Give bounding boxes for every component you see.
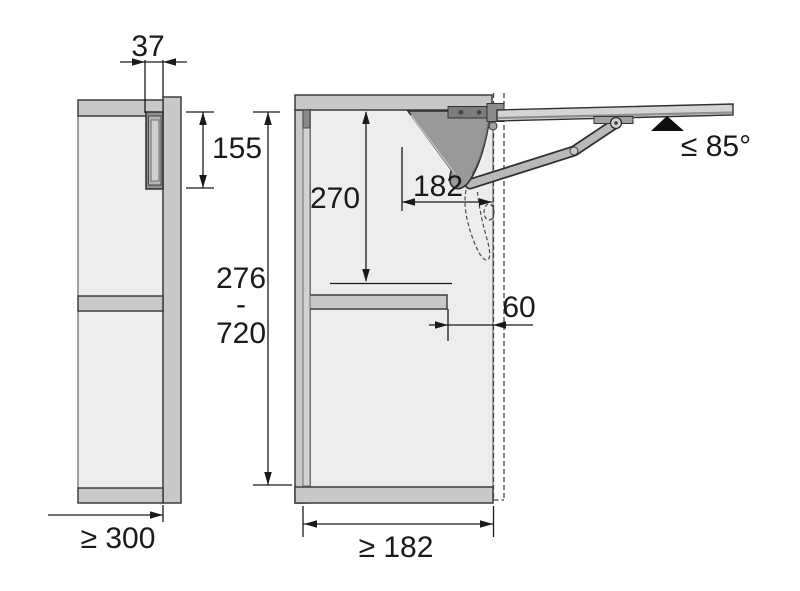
side-panel-corner-block (303, 110, 310, 128)
arrowhead-left-icon (304, 520, 317, 528)
open-flap (497, 104, 733, 131)
dim-fitting-reach-label: 182 (413, 170, 463, 203)
dim-min-cabinet-depth: ≥ 300 (48, 505, 163, 555)
dim-cabinet-height-range: 276 - 720 (216, 112, 292, 485)
arrowhead-left-icon (163, 58, 176, 66)
arrowhead-down-icon (199, 175, 207, 188)
dim-shelf-setback-label: 60 (502, 291, 535, 324)
dim-fitting-offset-label: 37 (131, 30, 164, 63)
dim-height-max-label: 720 (216, 317, 266, 350)
right-shelf (304, 295, 447, 309)
angle-marker-icon (651, 116, 684, 131)
dim-min-inner-depth-label: ≥ 182 (359, 531, 434, 564)
dim-opening-angle: ≤ 85° (681, 130, 751, 163)
dim-min-cabinet-depth-label: ≥ 300 (81, 522, 156, 555)
left-shelf (78, 296, 163, 311)
installation-diagram: 37 155 ≥ 300 270 (0, 0, 800, 591)
arrowhead-right-icon (480, 520, 493, 528)
right-bottom-panel (295, 487, 493, 503)
left-view (78, 97, 181, 503)
dim-fitting-height-label: 155 (212, 132, 262, 165)
fitting-front-view (146, 112, 163, 189)
bracket-screw-icon (477, 110, 482, 115)
dim-fitting-height: 155 (186, 112, 262, 188)
connector-pivot (489, 122, 497, 130)
diagram-canvas: 37 155 ≥ 300 270 (0, 0, 800, 591)
left-bottom-panel (78, 488, 163, 503)
flap-pivot-axle (614, 121, 618, 125)
fitting-inner-plate (151, 120, 159, 181)
arrowhead-down-icon (264, 472, 272, 485)
dim-min-inner-depth: ≥ 182 (303, 506, 494, 564)
bracket-screw-icon (459, 110, 464, 115)
dim-opening-angle-label: ≤ 85° (681, 130, 751, 163)
arrowhead-up-icon (199, 112, 207, 125)
side-panel-inner-edge (303, 110, 310, 486)
arrowhead-up-icon (264, 112, 272, 125)
left-side-panel (163, 97, 181, 503)
arm-elbow-joint (570, 147, 578, 155)
dim-pivot-drop-label: 270 (310, 182, 360, 215)
arrowhead-right-icon (150, 511, 163, 519)
